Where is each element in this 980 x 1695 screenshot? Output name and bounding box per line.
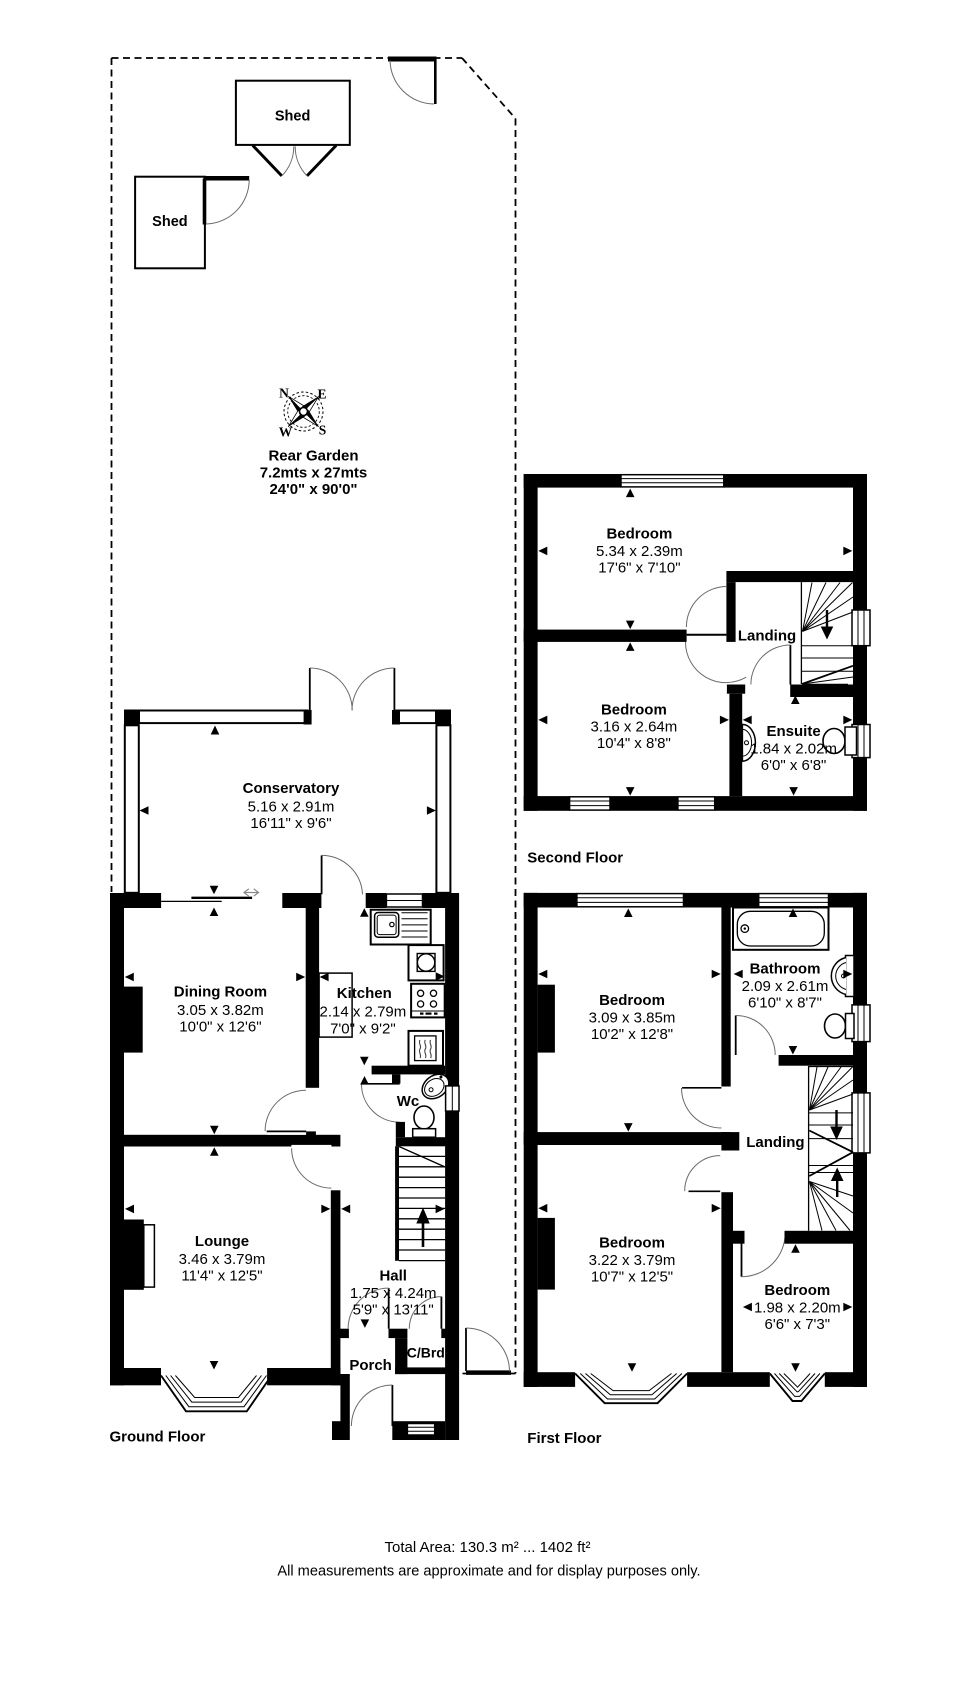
svg-text:1.98 x 2.20m: 1.98 x 2.20m [754,1300,841,1317]
svg-text:Wc: Wc [397,1093,420,1110]
svg-text:N: N [279,386,289,401]
svg-text:7.2mts x 27mts: 7.2mts x 27mts [260,465,368,482]
svg-text:3.22 x 3.79m: 3.22 x 3.79m [589,1252,676,1269]
svg-text:1.75 x 4.24m: 1.75 x 4.24m [350,1285,437,1302]
svg-text:Bedroom: Bedroom [601,702,667,719]
svg-text:6'10" x 8'7": 6'10" x 8'7" [748,995,822,1012]
svg-text:Rear Garden: Rear Garden [268,447,358,464]
svg-text:Shed: Shed [275,108,310,124]
svg-text:6'0" x 6'8": 6'0" x 6'8" [761,757,827,774]
svg-text:Ensuite: Ensuite [767,723,821,740]
svg-text:11'4" x 12'5": 11'4" x 12'5" [181,1268,262,1285]
svg-text:3.09 x 3.85m: 3.09 x 3.85m [589,1010,676,1027]
svg-text:3.16 x 2.64m: 3.16 x 2.64m [591,719,678,736]
svg-text:7'0" x 9'2": 7'0" x 9'2" [330,1021,396,1038]
svg-text:2.14 x 2.79m: 2.14 x 2.79m [320,1004,407,1021]
svg-text:Bedroom: Bedroom [764,1282,830,1299]
svg-text:24'0" x 90'0": 24'0" x 90'0" [269,481,357,498]
svg-text:C/Brd: C/Brd [407,1345,445,1361]
svg-text:Kitchen: Kitchen [337,985,392,1002]
svg-text:Conservatory: Conservatory [243,780,340,797]
svg-text:Shed: Shed [152,214,187,230]
svg-text:10'2" x 12'8": 10'2" x 12'8" [591,1026,673,1043]
svg-text:10'7" x 12'5": 10'7" x 12'5" [591,1269,673,1286]
svg-text:Lounge: Lounge [195,1233,249,1250]
svg-text:Bedroom: Bedroom [599,1235,665,1252]
svg-text:5'9" x 13'11": 5'9" x 13'11" [353,1302,434,1319]
svg-text:Dining Room: Dining Room [174,984,267,1001]
svg-text:S: S [319,423,327,438]
svg-text:Hall: Hall [379,1267,407,1284]
svg-text:W: W [279,425,293,440]
svg-text:10'4" x 8'8": 10'4" x 8'8" [597,735,671,752]
svg-text:6'6" x 7'3": 6'6" x 7'3" [765,1316,831,1333]
svg-text:3.05 x 3.82m: 3.05 x 3.82m [177,1002,264,1019]
svg-text:16'11" x 9'6": 16'11" x 9'6" [250,815,331,832]
svg-text:Bedroom: Bedroom [606,526,672,543]
svg-text:Second Floor: Second Floor [527,850,623,867]
svg-text:3.46 x 3.79m: 3.46 x 3.79m [179,1251,266,1268]
svg-text:5.16 x 2.91m: 5.16 x 2.91m [248,799,335,816]
svg-text:Landing: Landing [738,628,796,645]
svg-text:Porch: Porch [349,1357,392,1374]
svg-text:1.84 x 2.02m: 1.84 x 2.02m [750,741,837,758]
svg-text:E: E [317,387,326,402]
svg-text:All measurements are approxima: All measurements are approximate and for… [277,1563,700,1579]
svg-text:Ground Floor: Ground Floor [110,1429,206,1446]
svg-text:Bathroom: Bathroom [750,961,821,978]
svg-text:First Floor: First Floor [527,1430,601,1447]
svg-text:2.09 x 2.61m: 2.09 x 2.61m [742,978,829,995]
svg-text:17'6" x 7'10": 17'6" x 7'10" [598,560,680,577]
svg-text:Total Area: 130.3 m² ... 1402: Total Area: 130.3 m² ... 1402 ft² [385,1539,591,1556]
svg-text:5.34 x 2.39m: 5.34 x 2.39m [596,543,683,560]
svg-text:Landing: Landing [746,1134,804,1151]
svg-text:10'0" x 12'6": 10'0" x 12'6" [179,1019,261,1036]
svg-text:Bedroom: Bedroom [599,992,665,1009]
